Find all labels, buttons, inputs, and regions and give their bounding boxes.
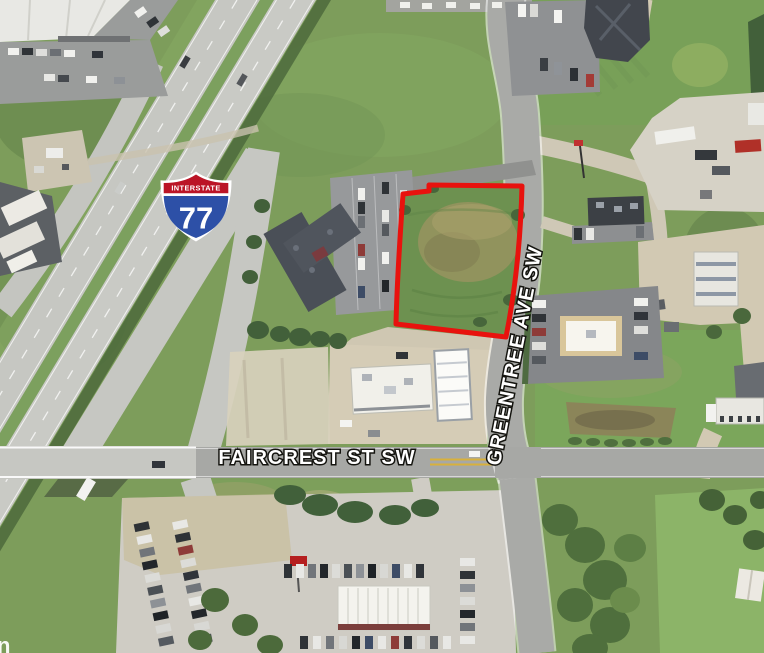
- industrial-warehouse-site: [0, 0, 178, 104]
- outlined-parcel: [396, 185, 525, 337]
- flag: [574, 140, 583, 146]
- shield-header-text: INTERSTATE: [171, 184, 220, 193]
- aerial-map-canvas: FAIRCREST ST SW GREENTREE AVE SW INTERST…: [0, 0, 764, 653]
- aerial-map: FAIRCREST ST SW GREENTREE AVE SW INTERST…: [0, 0, 764, 653]
- fuel-canopy: [434, 349, 472, 421]
- house: [735, 568, 764, 601]
- fast-food-site: [522, 286, 664, 384]
- dealership-building: [338, 586, 430, 630]
- watermark-fragment: n: [0, 633, 10, 653]
- faircrest-street-label: FAIRCREST ST SW: [218, 447, 415, 469]
- shield-route-number: 77: [179, 201, 213, 236]
